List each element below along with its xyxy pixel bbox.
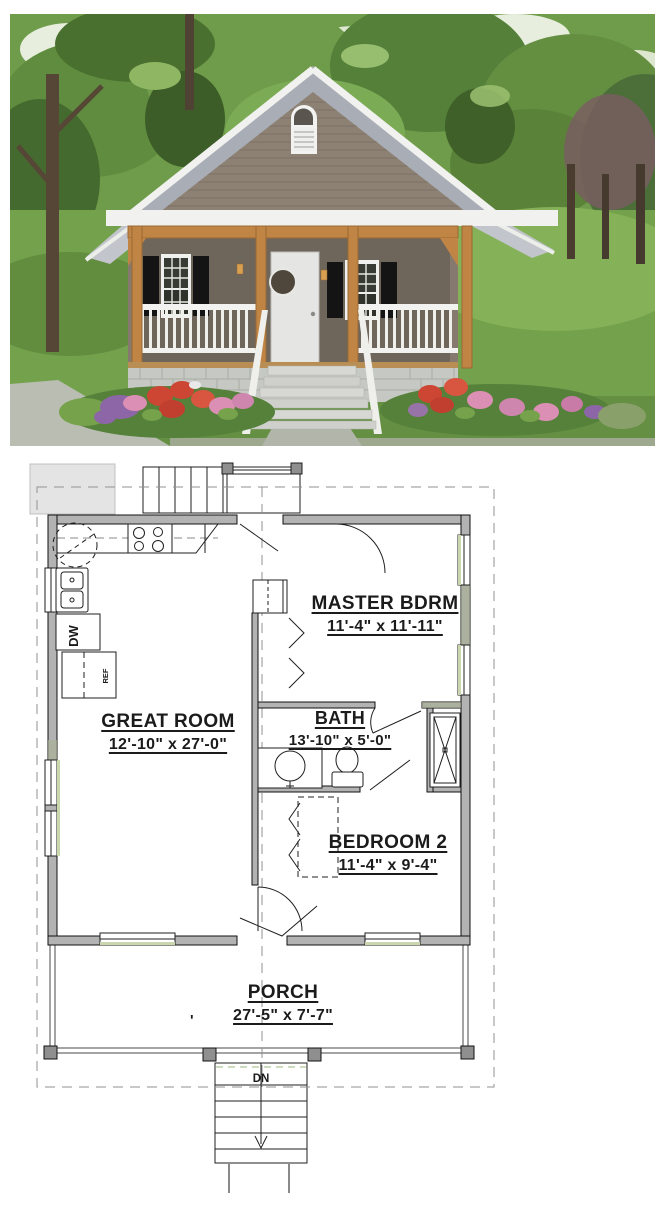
door-round-window [270, 269, 296, 295]
front-door [270, 252, 319, 364]
back-door-leaf [240, 524, 278, 551]
room-label-great-room: GREAT ROOM 12'-10" x 27'-0" [56, 710, 280, 755]
cottage-photo [10, 14, 655, 446]
porch-fascia [106, 210, 558, 226]
room-label-porch: PORCH 27'-5" x 7'-7" [196, 981, 370, 1026]
porch-beam [128, 226, 458, 238]
master-bdrm-name: MASTER BDRM [278, 592, 492, 615]
refrigerator-label: REF [101, 668, 110, 683]
bedroom-2-name: BEDROOM 2 [300, 831, 476, 854]
stairs-down-label: DN [253, 1073, 270, 1085]
master-bdrm-dims: 11'-4" x 11'-11" [278, 617, 492, 637]
bath-dims: 13'-10" x 5'-0" [262, 732, 418, 750]
shower [430, 713, 460, 787]
master-door-swing [336, 524, 385, 573]
kitchen-sink [56, 568, 88, 612]
bedroom-2-dims: 11'-4" x 9'-4" [300, 856, 476, 876]
bedroom2-bath-door [370, 760, 410, 790]
back-stairs [143, 463, 302, 513]
corner-counter [53, 523, 97, 567]
dishwasher-label: DW [66, 624, 81, 646]
porch-name: PORCH [196, 981, 370, 1004]
toilet [332, 747, 363, 787]
bath-name: BATH [262, 708, 418, 730]
room-label-bath: BATH 13'-10" x 5'-0" [262, 708, 418, 750]
gable-arch-window [291, 105, 317, 154]
room-label-master-bdrm: MASTER BDRM 11'-4" x 11'-11" [278, 592, 492, 637]
porch-dims: 27'-5" x 7'-7" [196, 1006, 370, 1026]
porch-tick-mark: ' [190, 1012, 194, 1029]
back-pad [30, 464, 115, 514]
great-room-dims: 12'-10" x 27'-0" [56, 735, 280, 755]
room-label-bedroom-2: BEDROOM 2 11'-4" x 9'-4" [300, 831, 476, 876]
door-knob [311, 312, 315, 316]
kitchen [53, 523, 218, 698]
great-room-name: GREAT ROOM [56, 710, 280, 733]
front-door-leaves [240, 906, 317, 936]
house-plan-pin: DN DW REF MASTER BDRM 11'-4" x 11'-11" G… [0, 0, 664, 1211]
